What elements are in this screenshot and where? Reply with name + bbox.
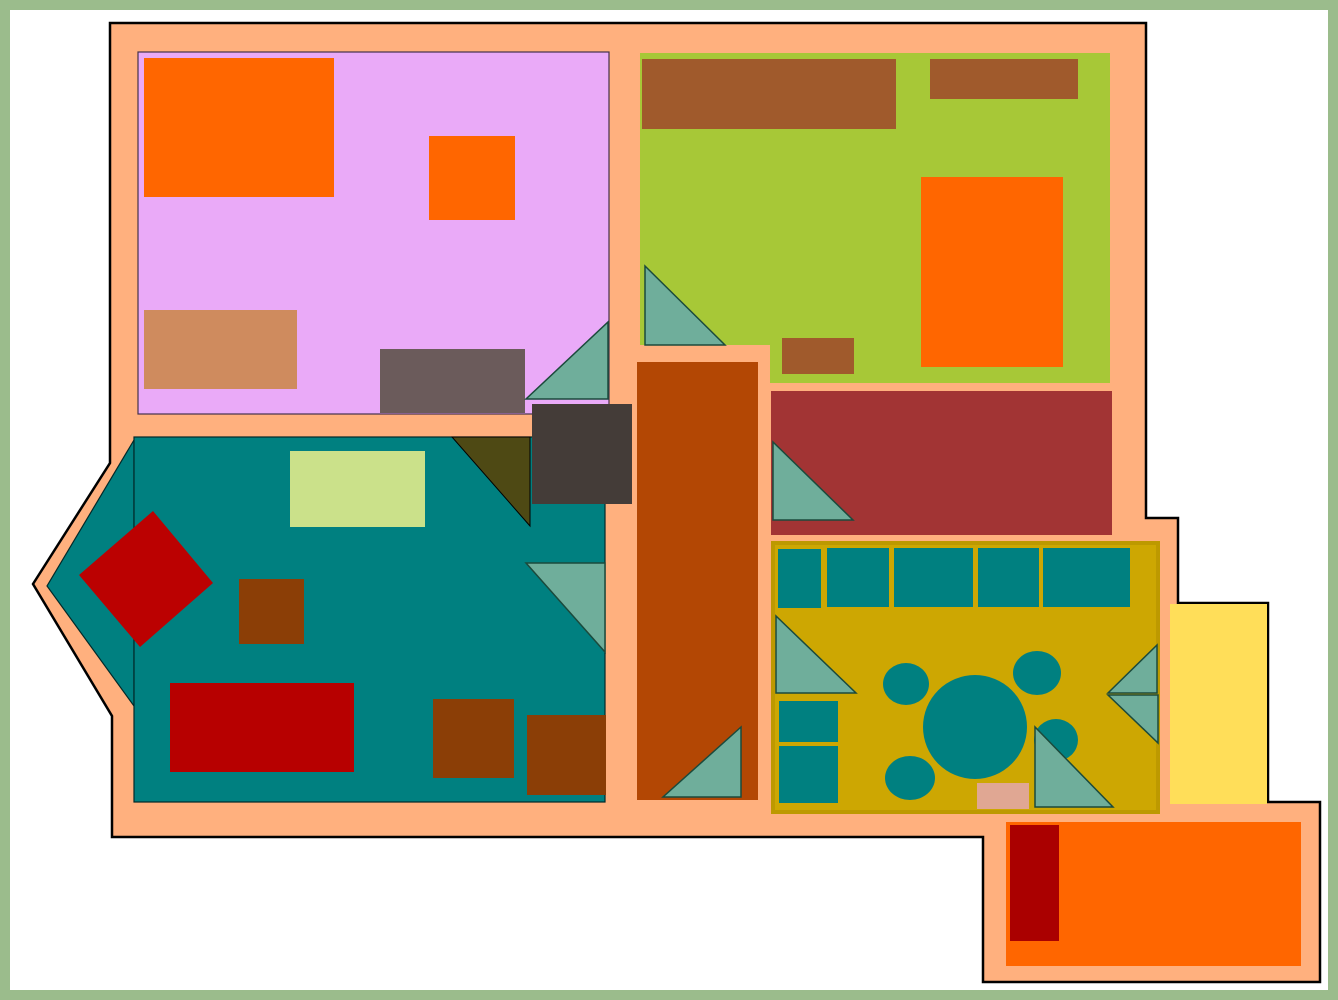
pink-mat — [977, 783, 1029, 809]
floor-plan — [0, 0, 1338, 1000]
brown-shelf — [930, 59, 1078, 99]
counter-4 — [978, 548, 1039, 607]
lightgreen-rug — [290, 451, 425, 527]
brown-chest-2 — [527, 715, 606, 795]
chair-northwest — [883, 663, 929, 705]
brown-wardrobe — [642, 59, 896, 129]
red-rug — [170, 683, 354, 772]
yellow-annex — [1170, 604, 1267, 804]
orange-bed — [144, 58, 334, 197]
cabinet-2 — [779, 746, 838, 803]
orange-bed-2 — [921, 177, 1063, 367]
floor-plan-canvas — [0, 0, 1338, 1000]
counter-2 — [827, 548, 889, 607]
gray-dresser — [380, 349, 525, 413]
chair-southwest — [885, 756, 935, 800]
junction-block — [532, 404, 632, 504]
dining-table — [923, 675, 1027, 779]
brown-chest-1 — [433, 699, 514, 778]
tan-rug — [144, 310, 297, 389]
brown-side-table — [239, 579, 304, 644]
red-runner — [1010, 825, 1059, 941]
brown-stool — [782, 338, 854, 374]
counter-5 — [1043, 548, 1130, 607]
counter-1 — [778, 549, 821, 608]
counter-3 — [894, 548, 973, 607]
cabinet-1 — [779, 701, 838, 742]
orange-side-table — [429, 136, 515, 220]
chair-northeast — [1013, 651, 1061, 695]
